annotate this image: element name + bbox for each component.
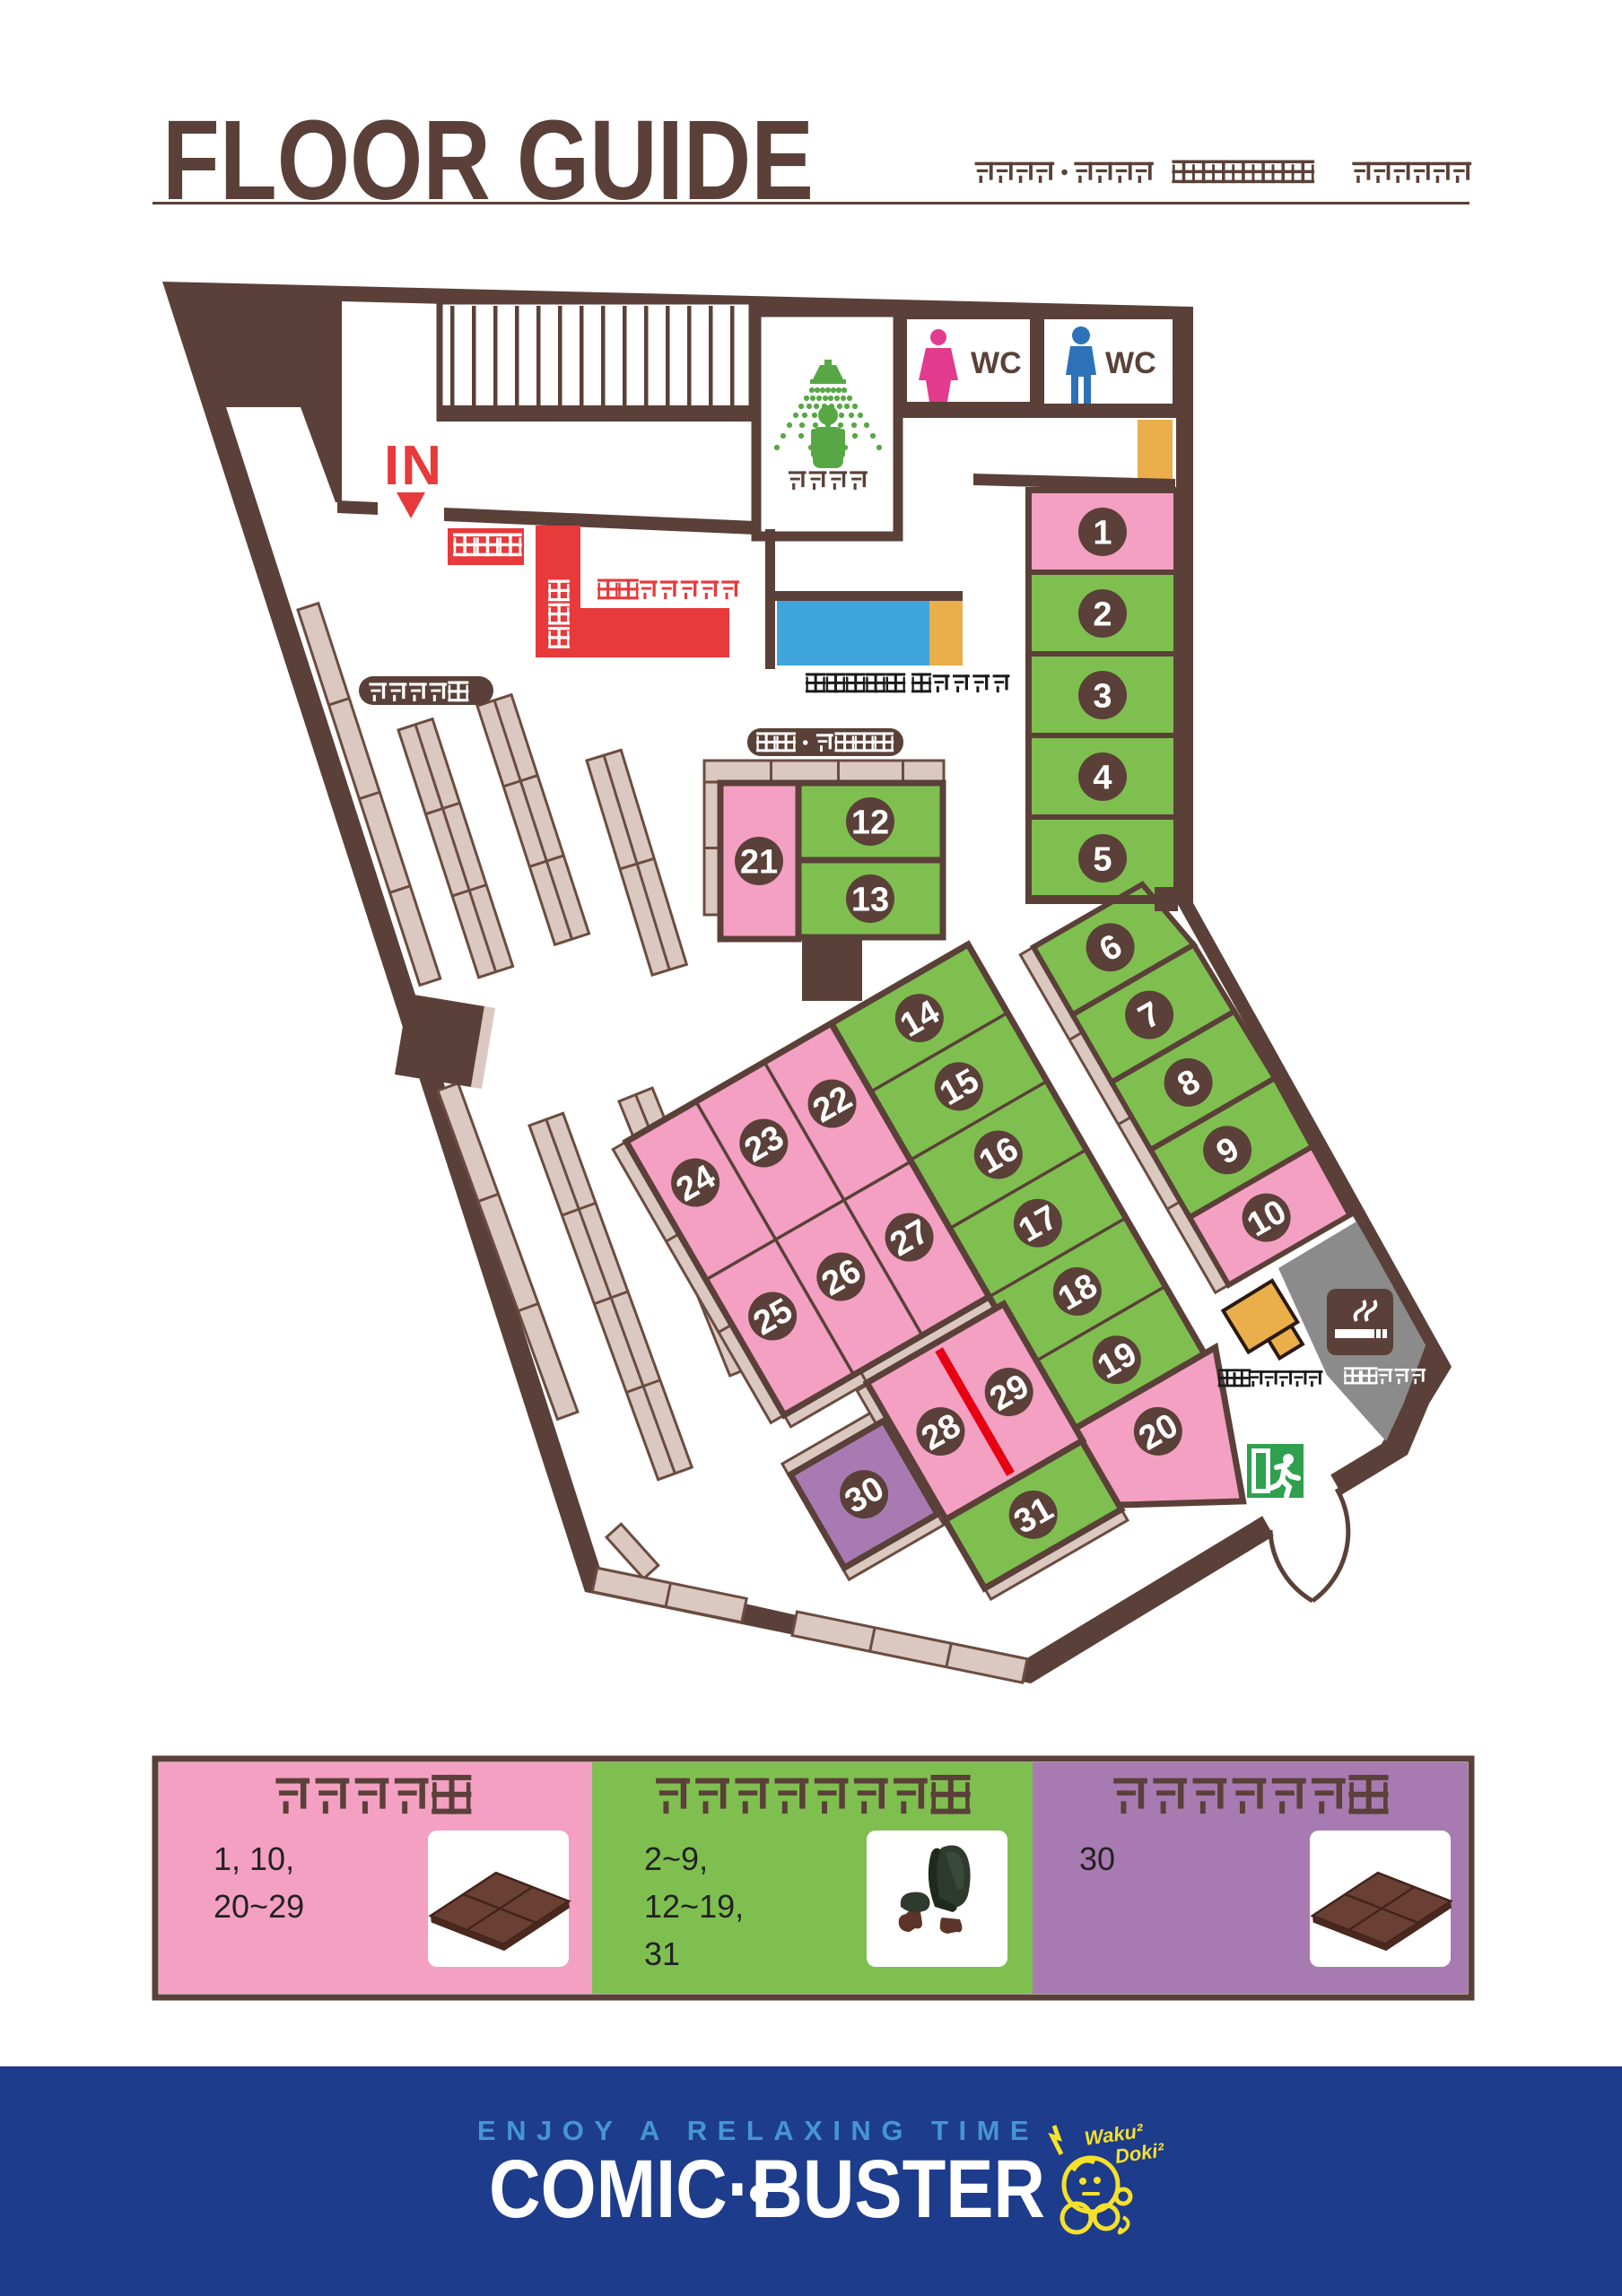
svg-text:31: 31 [644,1935,680,1972]
svg-text:13: 13 [851,881,889,918]
svg-text:4: 4 [1093,759,1112,796]
svg-text:ENJOY A RELAXING TIME: ENJOY A RELAXING TIME [477,2115,1039,2146]
svg-text:WC: WC [971,346,1022,380]
svg-text:IN: IN [384,435,443,497]
svg-text:12~19,: 12~19, [644,1888,744,1925]
svg-text:2~9,: 2~9, [644,1840,708,1877]
svg-text:COMIC·BUSTER: COMIC·BUSTER [489,2144,1045,2235]
svg-text:5: 5 [1093,840,1112,878]
svg-text:1, 10,: 1, 10, [214,1840,294,1877]
svg-text:3: 3 [1093,677,1112,715]
svg-text:30: 30 [1079,1840,1115,1877]
svg-text:WC: WC [1105,346,1156,380]
svg-text:20~29: 20~29 [214,1888,304,1925]
svg-text:21: 21 [740,843,778,881]
svg-text:1: 1 [1093,514,1112,552]
svg-text:12: 12 [851,804,889,841]
svg-text:2: 2 [1093,596,1112,633]
